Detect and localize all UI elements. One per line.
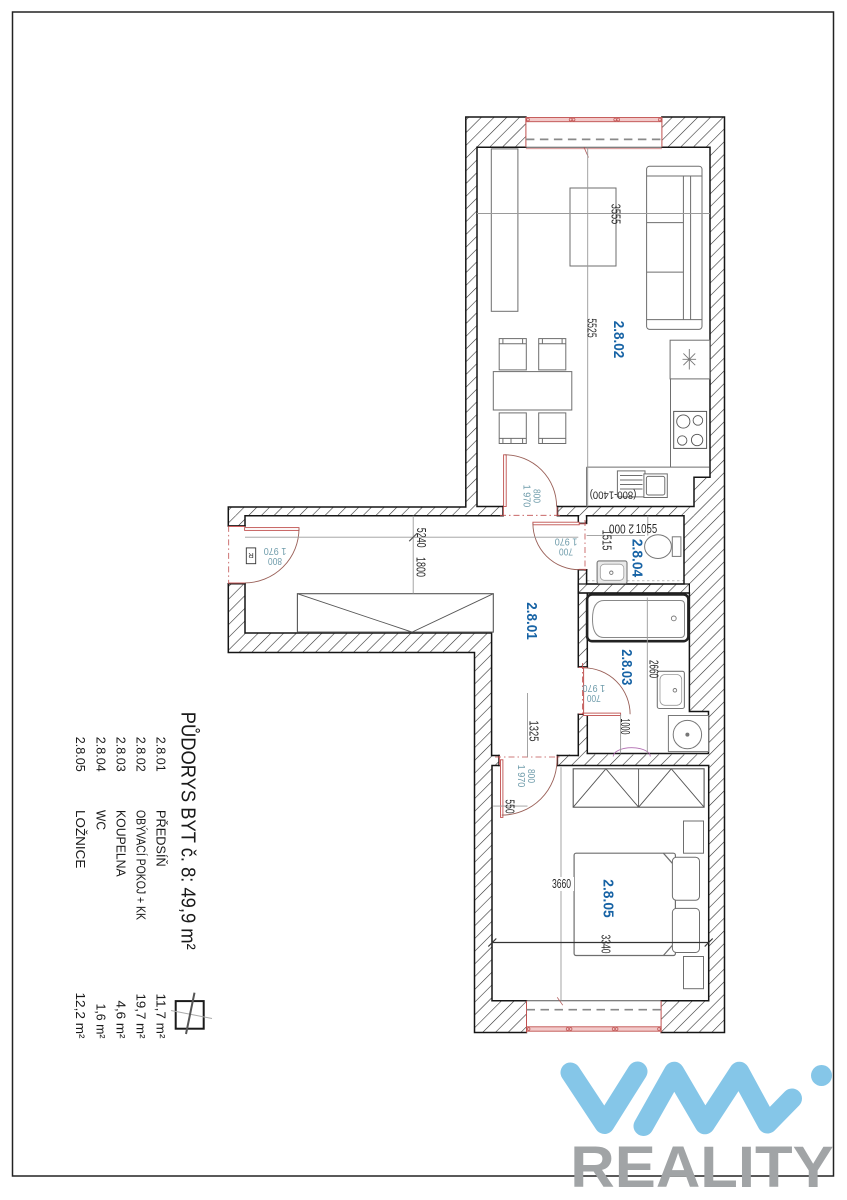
svg-text:2.8.03: 2.8.03 <box>113 737 128 772</box>
svg-text:700: 700 <box>559 546 573 557</box>
svg-text:2660: 2660 <box>646 660 660 678</box>
svg-text:19,7 m²: 19,7 m² <box>134 994 149 1040</box>
svg-text:1 970: 1 970 <box>554 536 577 547</box>
svg-text:PŮDORYS BYT č. 8: 49,9 m²: PŮDORYS BYT č. 8: 49,9 m² <box>177 712 201 950</box>
svg-text:OBÝVACÍ POKOJ + KK: OBÝVACÍ POKOJ + KK <box>134 810 149 920</box>
svg-text:700: 700 <box>586 692 600 703</box>
svg-text:(800-1400): (800-1400) <box>590 489 637 501</box>
svg-text:1515: 1515 <box>600 530 614 551</box>
svg-text:2.8.01: 2.8.01 <box>154 737 169 772</box>
svg-text:2.8.02: 2.8.02 <box>610 321 627 359</box>
svg-text:LOŽNICE: LOŽNICE <box>73 810 88 869</box>
svg-text:1000: 1000 <box>618 719 632 735</box>
svg-text:1 970: 1 970 <box>263 545 286 556</box>
svg-text:2.8.02: 2.8.02 <box>134 737 149 772</box>
svg-text:1,6 m²: 1,6 m² <box>93 1004 108 1040</box>
svg-text:5240: 5240 <box>414 528 428 548</box>
svg-text:550: 550 <box>502 799 516 813</box>
svg-text:1 970: 1 970 <box>515 765 526 788</box>
svg-text:1055: 1055 <box>636 522 657 536</box>
svg-text:1 970: 1 970 <box>521 485 532 508</box>
svg-text:1 970: 1 970 <box>582 682 605 693</box>
svg-text:11,7 m²: 11,7 m² <box>154 994 169 1040</box>
svg-text:WC: WC <box>93 810 108 830</box>
svg-text:PŘEDSÍŇ: PŘEDSÍŇ <box>154 810 169 867</box>
svg-text:2.8.04: 2.8.04 <box>629 539 646 578</box>
svg-text:KOUPELNA: KOUPELNA <box>113 810 128 877</box>
svg-text:3340: 3340 <box>599 934 613 953</box>
svg-text:2.8.04: 2.8.04 <box>93 737 108 772</box>
svg-text:2.8.03: 2.8.03 <box>618 649 635 685</box>
svg-text:3660: 3660 <box>552 877 571 891</box>
svg-text:3555: 3555 <box>609 204 623 225</box>
svg-text:2.8.05: 2.8.05 <box>73 737 88 772</box>
svg-text:800: 800 <box>268 555 282 566</box>
svg-text:2.8.05: 2.8.05 <box>600 879 617 917</box>
svg-text:R: R <box>248 551 254 560</box>
svg-text:12,2 m²: 12,2 m² <box>73 993 88 1040</box>
svg-text:2.8.01: 2.8.01 <box>523 602 540 640</box>
svg-text:1325: 1325 <box>527 721 541 742</box>
svg-text:1800: 1800 <box>414 557 428 577</box>
svg-text:5525: 5525 <box>585 318 599 337</box>
svg-text:4,6 m²: 4,6 m² <box>113 1001 128 1040</box>
svg-text:REALITY: REALITY <box>570 1135 833 1200</box>
